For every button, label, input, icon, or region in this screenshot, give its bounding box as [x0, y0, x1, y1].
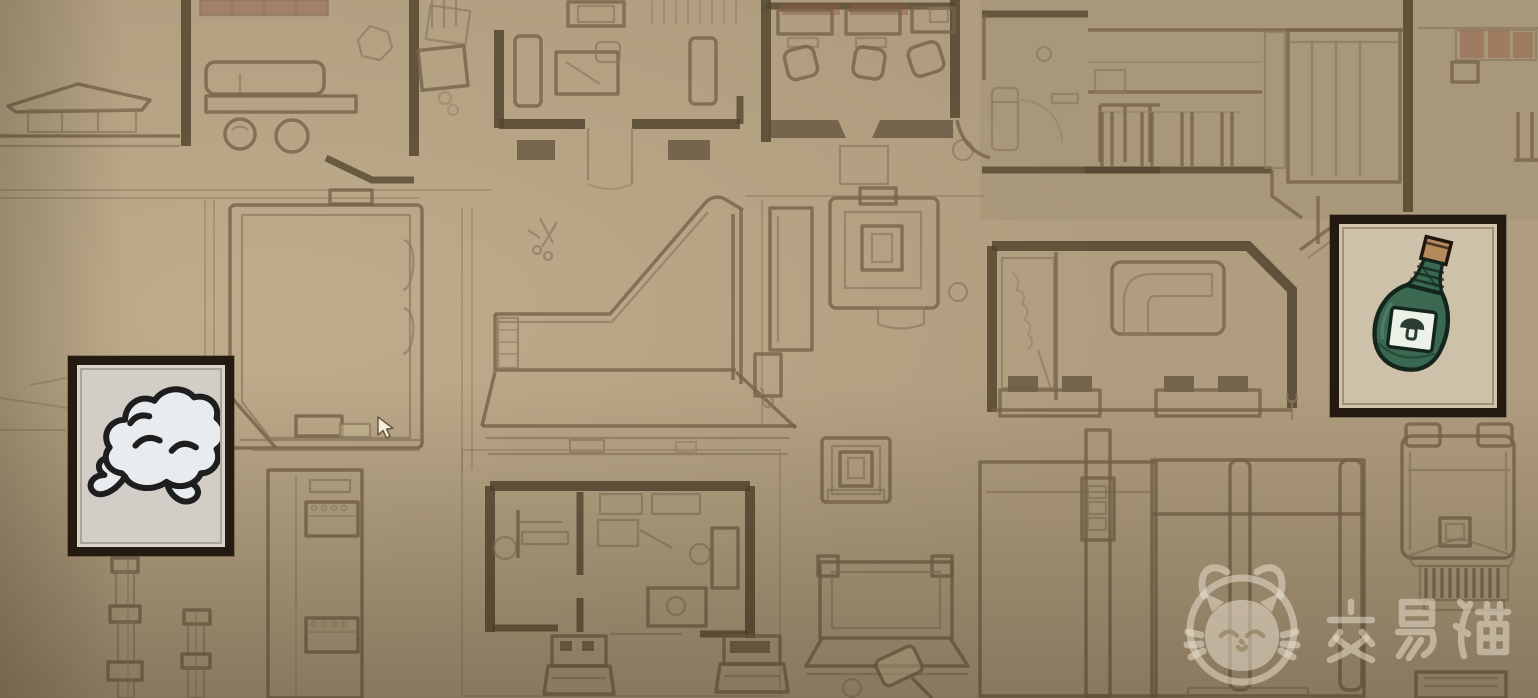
cat-face-logo-icon [1187, 568, 1297, 682]
item-card-smoke[interactable] [68, 356, 234, 556]
mouse-cursor-icon [376, 416, 396, 440]
watermark: 交易猫 [1160, 555, 1538, 698]
item-card-smoke-panel [80, 368, 222, 544]
item-card-potion-panel [1342, 227, 1494, 405]
watermark-text: 交易猫 [1320, 600, 1512, 684]
green-bottle-mushroom-icon [1344, 230, 1492, 402]
smoke-cloud-icon [82, 375, 220, 537]
item-card-potion[interactable] [1330, 215, 1506, 417]
game-screen: 交易猫 [0, 0, 1538, 698]
